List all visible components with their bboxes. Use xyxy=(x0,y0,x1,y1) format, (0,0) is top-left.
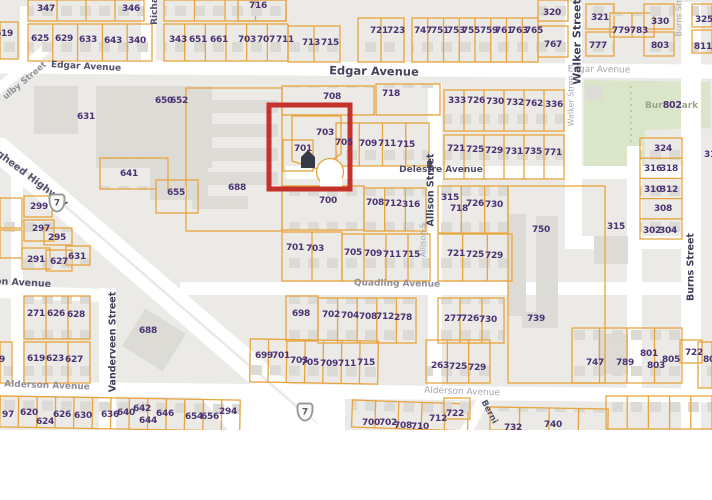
parcel-number: 811 xyxy=(694,42,712,52)
parcel-number: 80 xyxy=(703,355,712,365)
parcel-number: 626 xyxy=(53,410,71,420)
parcel-number: 278 xyxy=(394,313,412,323)
parcel-number: 655 xyxy=(167,188,185,198)
map-labels-layer: 3473466196256296336433403436516617037077… xyxy=(0,0,712,430)
parcel-number: 321 xyxy=(591,13,609,23)
parcel-number: 716 xyxy=(249,1,267,11)
parcel-number: 713 xyxy=(302,38,320,48)
parcel-number: 656 xyxy=(201,412,219,422)
parcel-number: 730 xyxy=(486,97,504,107)
street-label: Walker Stree xyxy=(567,76,576,127)
parcel-number: 709 xyxy=(320,359,338,369)
parcel-number: 325 xyxy=(695,15,712,25)
parcel-number: 725 xyxy=(466,250,484,260)
parcel-number: 651 xyxy=(189,35,207,45)
street-label: Edgar Avenue xyxy=(51,60,122,74)
parcel-number: 732 xyxy=(504,423,522,430)
park-name-fragment: Bur xyxy=(645,101,663,111)
parcel-number: 661 xyxy=(210,35,228,45)
parcel-number: 701 xyxy=(286,243,304,253)
parcel-number: 619 xyxy=(0,29,13,39)
parcel-number: 320 xyxy=(543,8,561,18)
parcel-number: 711 xyxy=(276,35,294,45)
parcel-number: 755 xyxy=(462,26,480,36)
parcel-number: 316 xyxy=(402,200,420,210)
parcel-number: 31 xyxy=(704,150,712,160)
parcel-number: 315 xyxy=(441,193,459,203)
parcel-number: 747 xyxy=(414,26,432,36)
parcel-number: 702 xyxy=(322,310,340,320)
parcel-number: 623 xyxy=(46,354,64,364)
parcel-number: 779 xyxy=(612,26,630,36)
parcel-number: 711 xyxy=(338,359,356,369)
parcel-number: 708 xyxy=(323,92,341,102)
parcel-number: 715 xyxy=(397,140,415,150)
parcel-number: 729 xyxy=(485,146,503,156)
parcel-number: 277 xyxy=(444,314,462,324)
parcel-number: 802 xyxy=(663,100,682,111)
parcel-number: 708 xyxy=(394,421,412,430)
parcel-number: 343 xyxy=(169,35,187,45)
parcel-number: 718 xyxy=(382,89,400,99)
parcel-number: 642 xyxy=(133,404,151,414)
park-label: Bur802ark xyxy=(645,100,698,111)
parcel-number: 330 xyxy=(651,17,669,27)
parcel-number: 725 xyxy=(466,145,484,155)
parcel-number: 771 xyxy=(544,148,562,158)
parcel-number: 624 xyxy=(36,417,54,427)
street-label: Quadling Avenue xyxy=(354,278,440,290)
parcel-number: 783 xyxy=(630,26,648,36)
parcel-number: 740 xyxy=(544,420,562,430)
parcel-number: 701 xyxy=(272,351,290,361)
street-label: Richa xyxy=(150,0,160,25)
parcel-number: 707 xyxy=(257,35,275,45)
parcel-number: 721 xyxy=(370,26,388,36)
street-label: ulby Street xyxy=(1,60,48,102)
street-label: Allison Street xyxy=(426,154,437,227)
parcel-number: 698 xyxy=(292,309,310,319)
parcel-number: 626 xyxy=(47,309,65,319)
map-screenshot: 3473466196256296336433403436516617037077… xyxy=(0,0,712,500)
street-label: Vanderveen Street xyxy=(108,292,119,393)
parcel-number: 318 xyxy=(660,164,678,174)
parcel-number: 271 xyxy=(27,309,45,319)
highway-7-shield-icon: 7 xyxy=(297,403,314,422)
parcel-number: 721 xyxy=(447,249,465,259)
street-label: Allison S xyxy=(419,223,428,257)
parcel-number: 641 xyxy=(120,169,138,179)
parcel-number: 762 xyxy=(525,99,543,109)
parcel-number: 299 xyxy=(30,202,48,212)
parcel-number: 705 xyxy=(301,358,319,368)
parcel-number: 340 xyxy=(128,36,146,46)
parcel-number: 704 xyxy=(341,311,359,321)
street-label: Burns Str xyxy=(675,0,684,37)
parcel-number: 712 xyxy=(429,414,447,424)
parcel-number: 631 xyxy=(68,252,86,262)
parcel-number: 705 xyxy=(335,138,353,148)
parcel-number: 9 xyxy=(0,355,5,365)
parcel-number: 710 xyxy=(411,422,429,430)
parcel-number: 726 xyxy=(467,96,485,106)
street-label: Burns Street xyxy=(686,233,697,301)
street-label: Alderson Avenue xyxy=(4,380,90,393)
parcel-number: 631 xyxy=(77,112,95,122)
parcel-number: 722 xyxy=(446,409,464,419)
parcel-number: 688 xyxy=(139,326,157,336)
parcel-number: 729 xyxy=(485,251,503,261)
parcel-number: 619 xyxy=(27,354,45,364)
parcel-number: 312 xyxy=(660,185,678,195)
street-label: Walker Street xyxy=(571,0,584,85)
parcel-number: 723 xyxy=(387,26,405,36)
parcel-number: 263 xyxy=(431,361,449,371)
parcel-number: 725 xyxy=(449,362,467,372)
parcel-number: 712 xyxy=(384,199,402,209)
parcel-number: 315 xyxy=(607,222,625,232)
parcel-number: 709 xyxy=(364,249,382,259)
parcel-number: 711 xyxy=(383,250,401,260)
parcel-number: 643 xyxy=(104,36,122,46)
parcel-number: 625 xyxy=(31,34,49,44)
parcel-number: 750 xyxy=(532,225,550,235)
parcel-number: 777 xyxy=(589,41,607,51)
street-label: Delestre Avenue xyxy=(399,165,483,175)
parcel-number: 715 xyxy=(402,250,420,260)
street-label: on Avenue xyxy=(0,276,51,290)
parcel-number: 700 xyxy=(362,418,380,428)
parcel-number: 731 xyxy=(505,147,523,157)
parcel-number: 715 xyxy=(321,38,339,48)
parcel-number: 346 xyxy=(122,4,140,14)
parcel-number: 324 xyxy=(654,144,672,154)
parcel-number: 735 xyxy=(524,147,542,157)
parcel-number: 708 xyxy=(366,198,384,208)
parcel-number: 646 xyxy=(156,409,174,419)
street-label: Alderson Avenue xyxy=(424,386,500,399)
parcel-number: 700 xyxy=(319,196,337,206)
parcel-number: 803 xyxy=(651,41,669,51)
parcel-number: 739 xyxy=(527,314,545,324)
parcel-number: 726 xyxy=(461,314,479,324)
parcel-number: 789 xyxy=(616,358,634,368)
parcel-number: 726 xyxy=(466,199,484,209)
parcel-number: 722 xyxy=(685,348,703,358)
parcel-number: 747 xyxy=(586,358,604,368)
parcel-number: 699 xyxy=(255,351,273,361)
parcel-number: 295 xyxy=(48,233,66,243)
parcel-number: 97 xyxy=(2,410,14,420)
parcel-number: 732 xyxy=(506,98,524,108)
parcel-number: 712 xyxy=(376,312,394,322)
parcel-number: 627 xyxy=(50,257,68,267)
parcel-number: 729 xyxy=(468,363,486,373)
parcel-number: 703 xyxy=(316,128,334,138)
parcel-number: 711 xyxy=(378,139,396,149)
parcel-number: 701 xyxy=(294,144,312,154)
parcel-number: 730 xyxy=(479,315,497,325)
parcel-number: 730 xyxy=(485,200,503,210)
parcel-number: 705 xyxy=(344,248,362,258)
parcel-number: 629 xyxy=(55,34,73,44)
parcel-number: 708 xyxy=(359,312,377,322)
parcel-number: 703 xyxy=(306,244,324,254)
parcel-number: 333 xyxy=(448,96,466,106)
parcel-number: 291 xyxy=(27,255,45,265)
parcel-number: 709 xyxy=(359,139,377,149)
parcel-number: 336 xyxy=(545,100,563,110)
parcel-number: 628 xyxy=(67,310,85,320)
parcel-number: 767 xyxy=(544,40,562,50)
parcel-number: 347 xyxy=(37,4,55,14)
parcel-number: 652 xyxy=(170,96,188,106)
parcel-number: 627 xyxy=(65,355,83,365)
map-canvas[interactable]: 3473466196256296336433403436516617037077… xyxy=(0,0,712,430)
street-label: Berni xyxy=(479,398,500,425)
street-label: Edgar Avenue xyxy=(329,63,419,79)
parcel-number: 715 xyxy=(357,358,375,368)
parcel-number: 644 xyxy=(139,416,157,426)
parcel-number: 721 xyxy=(447,144,465,154)
park-name-fragment: ark xyxy=(682,101,699,111)
parcel-number: 801 xyxy=(640,349,658,359)
parcel-number: 805 xyxy=(662,355,680,365)
parcel-number: 633 xyxy=(79,35,97,45)
parcel-number: 765 xyxy=(525,26,543,36)
parcel-number: 308 xyxy=(654,204,672,214)
parcel-number: 688 xyxy=(228,183,246,193)
parcel-number: 294 xyxy=(219,407,237,417)
parcel-number: 630 xyxy=(74,411,92,421)
parcel-number: 703 xyxy=(238,35,256,45)
parcel-number: 304 xyxy=(659,226,677,236)
